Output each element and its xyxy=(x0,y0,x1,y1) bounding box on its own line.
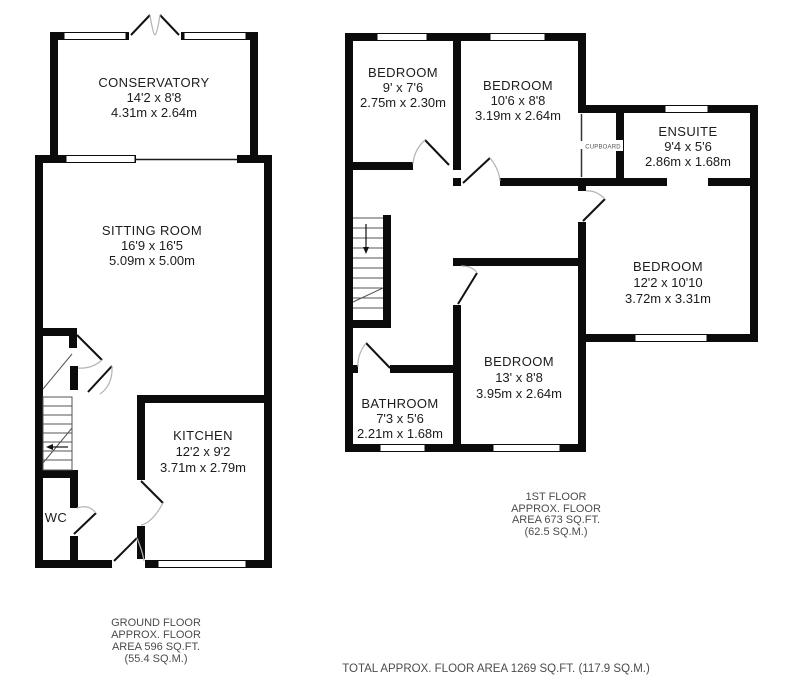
first-floor-stairs xyxy=(353,218,383,308)
first-floor-room-labels: BEDROOM 9' x 7'6 2.75m x 2.30m BEDROOM 1… xyxy=(357,65,731,441)
bedroom-front-left-size-metric: 2.75m x 2.30m xyxy=(360,95,446,110)
ensuite-name: ENSUITE xyxy=(658,124,717,139)
window xyxy=(635,335,707,342)
first-floor-note-line1: 1ST FLOOR xyxy=(526,491,587,503)
floorplan-canvas: CONSERVATORY 14'2 x 8'8 4.31m x 2.64m SI… xyxy=(0,0,800,686)
bedroom-right-size-metric: 3.72m x 3.31m xyxy=(625,291,711,306)
ensuite-size-metric: 2.86m x 1.68m xyxy=(645,154,731,169)
first-floor-plan: CUPBOARD xyxy=(345,33,758,538)
first-floor-note: 1ST FLOOR APPROX. FLOOR AREA 673 SQ.FT. … xyxy=(511,491,601,538)
stairs-direction-arrow xyxy=(46,444,68,450)
window xyxy=(493,445,560,452)
ground-floor-note-line1: GROUND FLOOR xyxy=(111,617,201,629)
bedroom-front-mid-size-metric: 3.19m x 2.64m xyxy=(475,108,561,123)
kitchen-door xyxy=(141,481,163,525)
sitting-room-name: SITTING ROOM xyxy=(102,223,202,238)
wc-name: WC xyxy=(45,510,67,525)
ground-floor-room-labels: CONSERVATORY 14'2 x 8'8 4.31m x 2.64m SI… xyxy=(45,75,246,525)
total-floor-area-note: TOTAL APPROX. FLOOR AREA 1269 SQ.FT. (11… xyxy=(342,663,650,675)
window xyxy=(380,445,425,452)
bathroom-size-metric: 2.21m x 1.68m xyxy=(357,426,443,441)
ground-floor-note-line4: (55.4 SQ.M.) xyxy=(125,653,188,665)
bathroom-size-imperial: 7'3 x 5'6 xyxy=(376,411,424,426)
bedroom-right-size-imperial: 12'2 x 10'10 xyxy=(633,275,702,290)
conservatory-name: CONSERVATORY xyxy=(98,75,209,90)
ground-floor-plan: CONSERVATORY 14'2 x 8'8 4.31m x 2.64m SI… xyxy=(35,15,272,665)
first-floor-note-line3: AREA 673 SQ.FT. xyxy=(512,514,600,526)
bedroom-rear-door xyxy=(458,266,477,304)
window xyxy=(66,156,135,163)
window xyxy=(64,33,126,40)
bedroom-front-left-size-imperial: 9' x 7'6 xyxy=(383,80,423,95)
kitchen-name: KITCHEN xyxy=(173,428,233,443)
ensuite-size-imperial: 9'4 x 5'6 xyxy=(664,139,712,154)
kitchen-size-metric: 3.71m x 2.79m xyxy=(160,460,246,475)
bedroom-right-name: BEDROOM xyxy=(633,259,703,274)
first-floor-note-line4: (62.5 SQ.M.) xyxy=(525,526,588,538)
bedroom-rear-name: BEDROOM xyxy=(484,354,554,369)
kitchen-size-imperial: 12'2 x 9'2 xyxy=(176,444,231,459)
ground-floor-stairs xyxy=(43,354,72,470)
window xyxy=(377,34,427,41)
bathroom-name: BATHROOM xyxy=(361,396,438,411)
bedroom-front-mid-size-imperial: 10'6 x 8'8 xyxy=(491,93,546,108)
bedroom-rear-size-metric: 3.95m x 2.64m xyxy=(476,386,562,401)
hall-doors xyxy=(77,335,112,394)
sitting-room-size-imperial: 16'9 x 16'5 xyxy=(121,238,183,253)
floorplan-svg: CONSERVATORY 14'2 x 8'8 4.31m x 2.64m SI… xyxy=(0,0,800,686)
bathroom-door xyxy=(358,343,390,368)
ground-floor-note-line3: AREA 596 SQ.FT. xyxy=(112,641,200,653)
window xyxy=(490,34,545,41)
cupboard-name: CUPBOARD xyxy=(585,145,621,151)
sitting-room-size-metric: 5.09m x 5.00m xyxy=(109,253,195,268)
bedroom-right-door xyxy=(583,191,605,221)
wc-door xyxy=(74,507,96,534)
bedroom-front-left-door xyxy=(413,140,449,165)
ground-floor-note-line2: APPROX. FLOOR xyxy=(111,629,201,641)
conservatory-size-metric: 4.31m x 2.64m xyxy=(111,105,197,120)
ground-floor-note: GROUND FLOOR APPROX. FLOOR AREA 596 SQ.F… xyxy=(111,617,201,665)
window xyxy=(184,33,246,40)
window xyxy=(158,561,246,568)
bedroom-front-left-name: BEDROOM xyxy=(368,65,438,80)
bedroom-rear-size-imperial: 13' x 8'8 xyxy=(495,370,543,385)
window xyxy=(665,106,708,113)
bedroom-front-mid-door xyxy=(463,158,500,183)
conservatory-size-imperial: 14'2 x 8'8 xyxy=(127,90,182,105)
bedroom-front-mid-name: BEDROOM xyxy=(483,78,553,93)
